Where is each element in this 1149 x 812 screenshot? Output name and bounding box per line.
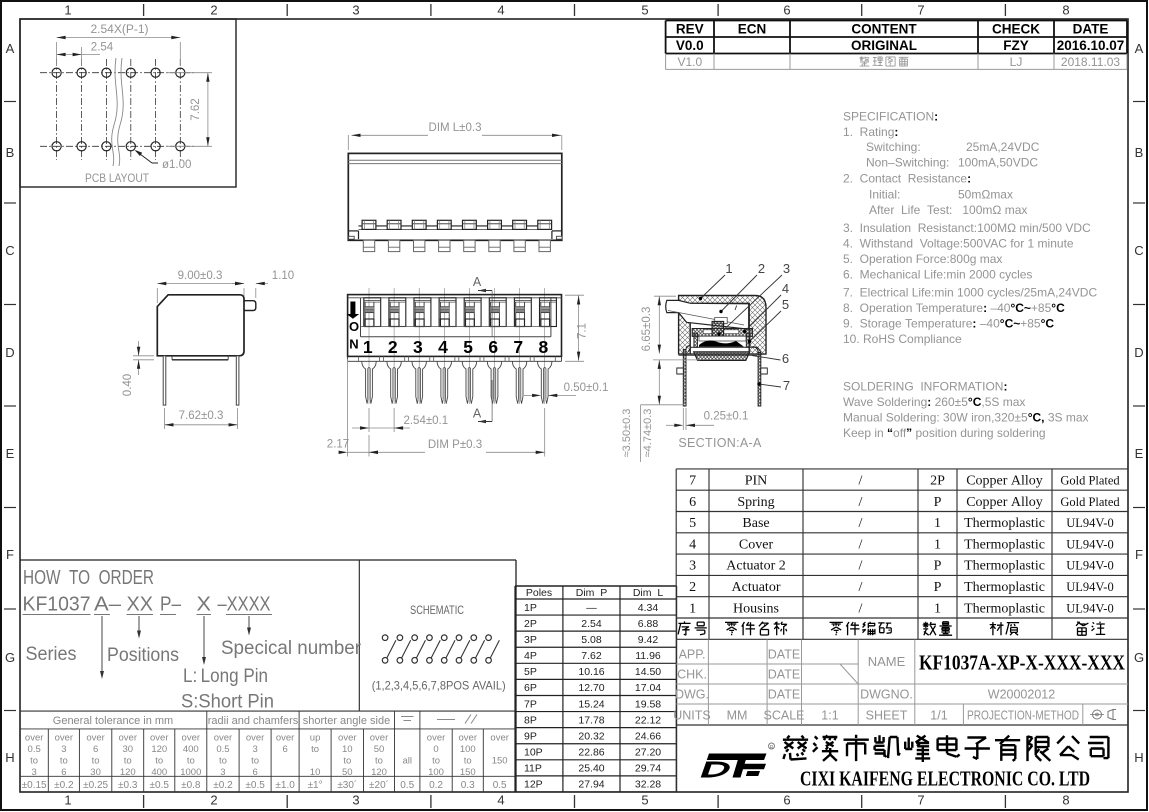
- svg-text:1: 1: [934, 601, 941, 616]
- svg-text:Actuator 2: Actuator 2: [726, 559, 785, 574]
- svg-text:DWGNO.: DWGNO.: [860, 688, 913, 702]
- svg-text:±0.8: ±0.8: [181, 780, 201, 791]
- svg-text:/: /: [859, 580, 863, 595]
- svg-text:over: over: [370, 733, 388, 744]
- svg-text:all: all: [402, 756, 412, 767]
- svg-text:0: 0: [433, 744, 438, 755]
- svg-text:/: /: [859, 601, 863, 616]
- svg-text:17.04: 17.04: [635, 682, 661, 694]
- svg-text:over: over: [276, 733, 294, 744]
- svg-text:ø1.00: ø1.00: [162, 159, 191, 171]
- svg-text:FZY: FZY: [1003, 38, 1029, 53]
- svg-text:4: 4: [497, 3, 504, 18]
- svg-text:2: 2: [689, 580, 696, 595]
- svg-text:6.65±0.3: 6.65±0.3: [641, 307, 653, 352]
- svg-text:0.5: 0.5: [28, 744, 41, 755]
- svg-text:Positions: Positions: [107, 645, 179, 666]
- svg-text:Thermoplastic: Thermoplastic: [964, 516, 1045, 531]
- svg-text:5: 5: [689, 516, 696, 531]
- svg-text:HOW TO ORDER: HOW TO ORDER: [23, 567, 154, 589]
- svg-text:3: 3: [413, 337, 423, 357]
- svg-text:1: 1: [725, 261, 732, 276]
- svg-text:30: 30: [90, 767, 101, 778]
- svg-text:/: /: [859, 474, 863, 489]
- svg-text:SCHEMATIC: SCHEMATIC: [410, 603, 464, 617]
- svg-text:6. Mechanical Life:min 2000 c: 6. Mechanical Life:min 2000 cycles: [843, 268, 1032, 282]
- svg-text:D: D: [5, 345, 14, 360]
- svg-text:up: up: [310, 733, 321, 744]
- svg-text:F: F: [6, 547, 14, 562]
- svg-text:10: 10: [310, 767, 321, 778]
- svg-text:DATE: DATE: [768, 668, 800, 682]
- svg-text:3: 3: [689, 559, 696, 574]
- svg-text:Gold Plated: Gold Plated: [1060, 495, 1120, 509]
- svg-text:1000: 1000: [180, 767, 201, 778]
- svg-text:±0.5: ±0.5: [150, 780, 170, 791]
- svg-text:5. Operation Force:800g max: 5. Operation Force:800g max: [843, 252, 1002, 266]
- svg-text:over: over: [427, 733, 445, 744]
- svg-text:A: A: [473, 275, 482, 289]
- svg-text:6.88: 6.88: [638, 618, 659, 630]
- svg-text:120: 120: [371, 767, 387, 778]
- svg-text:7: 7: [689, 474, 696, 489]
- svg-text:25mA,24VDC: 25mA,24VDC: [966, 140, 1040, 154]
- svg-text:SCALE: SCALE: [764, 709, 805, 723]
- svg-text:9P: 9P: [524, 730, 537, 742]
- svg-text:to: to: [60, 756, 68, 767]
- svg-text:0.50±0.1: 0.50±0.1: [564, 382, 609, 394]
- svg-text:P–: P–: [160, 594, 182, 616]
- svg-text:5.08: 5.08: [581, 634, 602, 646]
- svg-text:Dim L: Dim L: [633, 587, 663, 599]
- svg-text:B: B: [6, 145, 15, 160]
- svg-text:to: to: [219, 756, 227, 767]
- svg-text:7.62: 7.62: [581, 650, 602, 662]
- svg-text:B: B: [1135, 145, 1144, 160]
- svg-text:F: F: [1135, 547, 1143, 562]
- svg-text:6: 6: [93, 744, 98, 755]
- svg-text:0.2: 0.2: [429, 780, 443, 791]
- svg-text:1: 1: [934, 537, 941, 552]
- svg-text:6: 6: [689, 495, 696, 510]
- svg-text:2: 2: [388, 337, 398, 357]
- svg-text:2016.10.07: 2016.10.07: [1057, 38, 1125, 53]
- svg-text:14.50: 14.50: [635, 666, 661, 678]
- svg-text:1P: 1P: [524, 602, 537, 614]
- svg-text:to: to: [343, 756, 351, 767]
- svg-text:to: to: [187, 756, 195, 767]
- svg-text:Wave Soldering: 260±5°C,5S max: Wave Soldering: 260±5°C,5S max: [843, 395, 1025, 409]
- svg-text:5: 5: [463, 337, 473, 357]
- svg-text:3. Insulation Resistanct:100: 3. Insulation Resistanct:100MΩ min/500 V…: [843, 221, 1091, 235]
- svg-text:to: to: [375, 756, 383, 767]
- svg-text:Base: Base: [742, 516, 769, 531]
- svg-text:to: to: [251, 756, 259, 767]
- svg-text:P: P: [934, 495, 942, 510]
- svg-text:4: 4: [497, 793, 504, 808]
- svg-text:±30´: ±30´: [337, 779, 357, 791]
- svg-text:3: 3: [783, 261, 790, 276]
- svg-text:/: /: [859, 537, 863, 552]
- svg-text:Non–Switching:: Non–Switching:: [866, 156, 949, 170]
- svg-text:22.86: 22.86: [578, 747, 604, 759]
- svg-text:1. Rating:: 1. Rating:: [843, 125, 898, 139]
- svg-text:Spring: Spring: [737, 495, 774, 510]
- svg-text:3: 3: [61, 744, 66, 755]
- svg-text:3: 3: [252, 744, 257, 755]
- svg-text:1: 1: [689, 601, 696, 616]
- svg-text:over: over: [119, 733, 137, 744]
- svg-text:2018.11.03: 2018.11.03: [1061, 55, 1120, 69]
- svg-text:UL94V-0: UL94V-0: [1066, 580, 1113, 594]
- svg-text:2.54±0.1: 2.54±0.1: [403, 415, 448, 427]
- svg-text:100: 100: [428, 767, 444, 778]
- svg-text:17.78: 17.78: [578, 714, 604, 726]
- svg-text:150: 150: [460, 767, 476, 778]
- svg-text:1:1: 1:1: [821, 709, 838, 723]
- svg-text:over: over: [338, 733, 356, 744]
- svg-text:400: 400: [151, 767, 167, 778]
- svg-text:radii and chamfers: radii and chamfers: [208, 715, 299, 727]
- svg-text:400: 400: [183, 744, 199, 755]
- svg-text:±0.15: ±0.15: [22, 780, 47, 791]
- svg-text:H: H: [1134, 750, 1143, 765]
- svg-text:DWG.: DWG.: [675, 688, 709, 702]
- svg-text:7.62±0.3: 7.62±0.3: [179, 410, 224, 422]
- svg-text:9. Storage Temperature: –40°C: 9. Storage Temperature: –40°C~+85°C: [843, 317, 1054, 331]
- svg-text:6P: 6P: [524, 682, 537, 694]
- svg-text:150: 150: [492, 756, 508, 767]
- svg-text:1: 1: [363, 337, 373, 357]
- svg-text:DIM P±0.3: DIM P±0.3: [428, 439, 482, 451]
- svg-text:to: to: [92, 756, 100, 767]
- svg-text:3P: 3P: [524, 634, 537, 646]
- svg-text:A: A: [6, 41, 15, 56]
- svg-text:4: 4: [782, 281, 789, 296]
- svg-text:120: 120: [151, 744, 167, 755]
- svg-text:4P: 4P: [524, 650, 537, 662]
- svg-text:29.74: 29.74: [635, 763, 661, 775]
- svg-text:Thermoplastic: Thermoplastic: [964, 537, 1045, 552]
- svg-text:3: 3: [32, 767, 37, 778]
- svg-text:to: to: [464, 756, 472, 767]
- svg-text:10: 10: [342, 744, 353, 755]
- svg-text:7: 7: [783, 378, 790, 393]
- svg-text:8: 8: [1062, 793, 1069, 808]
- svg-text:50mΩmax: 50mΩmax: [958, 188, 1013, 202]
- svg-text:Gold Plated: Gold Plated: [1060, 474, 1120, 488]
- svg-text:50: 50: [342, 767, 353, 778]
- svg-text:11P: 11P: [524, 763, 542, 775]
- svg-text:PIN: PIN: [745, 474, 768, 489]
- svg-text:2: 2: [758, 261, 765, 276]
- svg-text:100mA,50VDC: 100mA,50VDC: [958, 156, 1038, 170]
- svg-text:27.20: 27.20: [635, 747, 661, 759]
- svg-text:8P: 8P: [524, 714, 537, 726]
- svg-text:C: C: [1134, 243, 1143, 258]
- svg-text:DATE: DATE: [768, 648, 800, 662]
- svg-text:Dim P: Dim P: [576, 587, 608, 599]
- svg-text:3: 3: [352, 793, 359, 808]
- svg-text:to: to: [432, 756, 440, 767]
- svg-text:7. Electrical Life:min 1000 c: 7. Electrical Life:min 1000 cycles/25mA,…: [843, 286, 1097, 300]
- svg-text:6: 6: [252, 767, 257, 778]
- svg-text:KF1037: KF1037: [23, 594, 91, 616]
- svg-text:7: 7: [917, 3, 924, 18]
- svg-text:SPECIFICATION:: SPECIFICATION:: [843, 110, 938, 124]
- svg-text:1: 1: [64, 793, 71, 808]
- svg-text:(1,2,3,4,5,6,7,8POS AVAIL): (1,2,3,4,5,6,7,8POS AVAIL): [372, 679, 506, 693]
- svg-text:4: 4: [689, 537, 696, 552]
- svg-text:0.25±0.1: 0.25±0.1: [704, 411, 749, 423]
- svg-text:P: P: [934, 559, 942, 574]
- svg-text:5: 5: [641, 793, 648, 808]
- svg-text:CIXI KAIFENG ELECTRONIC CO. LT: CIXI KAIFENG ELECTRONIC CO. LTD: [800, 767, 1090, 791]
- svg-text:N: N: [349, 337, 358, 352]
- svg-text:R: R: [770, 745, 774, 751]
- svg-text:L: Long Pin: L: Long Pin: [183, 666, 268, 687]
- svg-text:DATE: DATE: [1073, 22, 1109, 37]
- svg-text:DATE: DATE: [768, 688, 800, 702]
- svg-text:2P: 2P: [930, 474, 945, 489]
- svg-text:0.5: 0.5: [400, 780, 414, 791]
- svg-text:10.16: 10.16: [578, 666, 604, 678]
- svg-text:25.40: 25.40: [578, 763, 604, 775]
- svg-text:A–: A–: [94, 594, 122, 616]
- svg-text:UNITS: UNITS: [673, 709, 711, 723]
- svg-text:9.42: 9.42: [638, 634, 659, 646]
- svg-text:/: /: [859, 516, 863, 531]
- svg-text:over: over: [459, 733, 477, 744]
- svg-text:7.62: 7.62: [190, 98, 202, 120]
- svg-text:1: 1: [934, 516, 941, 531]
- svg-text:12.70: 12.70: [578, 682, 604, 694]
- svg-text:7: 7: [917, 793, 924, 808]
- svg-text:over: over: [55, 733, 73, 744]
- svg-text:Poles: Poles: [526, 587, 552, 599]
- svg-text:2.17: 2.17: [327, 439, 349, 451]
- svg-text:2: 2: [210, 3, 217, 18]
- svg-text:5: 5: [641, 3, 648, 18]
- svg-text:50: 50: [374, 744, 385, 755]
- svg-text:over: over: [150, 733, 168, 744]
- svg-text:A: A: [473, 407, 482, 421]
- svg-text:6: 6: [782, 351, 789, 366]
- svg-text:3: 3: [352, 3, 359, 18]
- svg-text:7: 7: [513, 337, 523, 357]
- svg-text:2: 2: [210, 793, 217, 808]
- svg-text:2.54: 2.54: [581, 618, 602, 630]
- svg-text:SECTION:A-A: SECTION:A-A: [678, 436, 762, 450]
- svg-text:±1.0: ±1.0: [275, 780, 295, 791]
- svg-text:H: H: [5, 750, 14, 765]
- svg-text:General tolerance in mm: General tolerance in mm: [53, 715, 173, 727]
- svg-text:±0.5: ±0.5: [245, 780, 265, 791]
- svg-text:22.12: 22.12: [635, 714, 661, 726]
- svg-text:10. RoHS Compliance: 10. RoHS Compliance: [843, 332, 962, 346]
- svg-text:0.40: 0.40: [122, 374, 134, 396]
- svg-text:11.96: 11.96: [635, 650, 661, 662]
- svg-text:XX: XX: [127, 594, 154, 616]
- svg-text:LJ: LJ: [1010, 55, 1023, 69]
- svg-text:CHECK: CHECK: [992, 22, 1040, 37]
- svg-text:G: G: [1134, 650, 1144, 665]
- svg-text:2.54: 2.54: [91, 42, 114, 54]
- svg-text:over: over: [246, 733, 264, 744]
- svg-text:Thermoplastic: Thermoplastic: [964, 601, 1045, 616]
- svg-text:Manual Soldering: 30W iron,320: Manual Soldering: 30W iron,320±5°C, 3S m…: [843, 411, 1089, 425]
- svg-text:6: 6: [488, 337, 498, 357]
- svg-text:1: 1: [64, 3, 71, 18]
- svg-text:over: over: [182, 733, 200, 744]
- svg-text:±0.2: ±0.2: [54, 780, 74, 791]
- svg-text:19.58: 19.58: [635, 698, 661, 710]
- svg-text:6: 6: [783, 793, 790, 808]
- svg-text:8. Operation Temperature: –40: 8. Operation Temperature: –40°C~+85°C: [843, 301, 1065, 315]
- svg-text:to: to: [124, 756, 132, 767]
- svg-text:0.5: 0.5: [216, 744, 229, 755]
- svg-text:6: 6: [282, 744, 287, 755]
- svg-text:32.28: 32.28: [635, 779, 661, 791]
- svg-text:UL94V-0: UL94V-0: [1066, 601, 1113, 615]
- svg-text:5P: 5P: [524, 666, 537, 678]
- svg-text:10P: 10P: [524, 747, 543, 759]
- svg-text:Series: Series: [26, 644, 77, 665]
- svg-text:ECN: ECN: [738, 22, 767, 37]
- svg-text:24.66: 24.66: [635, 730, 661, 742]
- svg-text:7P: 7P: [524, 698, 537, 710]
- svg-text:12P: 12P: [524, 779, 543, 791]
- svg-text:/: /: [859, 559, 863, 574]
- svg-text:Copper Alloy: Copper Alloy: [966, 474, 1043, 489]
- svg-text:1/1: 1/1: [930, 709, 947, 723]
- svg-text:ORIGINAL: ORIGINAL: [851, 38, 917, 53]
- svg-text:2P: 2P: [524, 618, 537, 630]
- svg-text:KF1037A-XP-X-XXX-XXX: KF1037A-XP-X-XXX-XXX: [919, 651, 1125, 675]
- svg-text:UL94V-0: UL94V-0: [1066, 537, 1113, 551]
- svg-text:NAME: NAME: [868, 654, 906, 669]
- svg-text:–XXXX: –XXXX: [218, 594, 271, 616]
- svg-text:±20´: ±20´: [369, 779, 389, 791]
- svg-text:±0.3: ±0.3: [118, 780, 138, 791]
- svg-text:CONTENT: CONTENT: [851, 22, 917, 37]
- svg-text:MM: MM: [727, 709, 748, 723]
- svg-text:G: G: [5, 650, 15, 665]
- svg-text:REV: REV: [676, 22, 704, 37]
- svg-text:Switching:: Switching:: [866, 140, 921, 154]
- svg-text:±0.25: ±0.25: [83, 780, 108, 791]
- svg-text:Thermoplastic: Thermoplastic: [964, 580, 1045, 595]
- svg-text:UL94V-0: UL94V-0: [1066, 516, 1113, 530]
- svg-text:over: over: [490, 733, 508, 744]
- svg-text:120: 120: [120, 767, 136, 778]
- svg-text:0.5: 0.5: [493, 780, 507, 791]
- svg-text:27.94: 27.94: [578, 779, 604, 791]
- svg-text:Housins: Housins: [733, 601, 779, 616]
- svg-text:over: over: [25, 733, 43, 744]
- svg-text:E: E: [1135, 446, 1144, 461]
- svg-text:≈3.50±0.3: ≈3.50±0.3: [621, 409, 633, 458]
- svg-text:to: to: [155, 756, 163, 767]
- svg-text:4: 4: [438, 337, 448, 357]
- svg-text:to: to: [30, 756, 38, 767]
- svg-text:W20002012: W20002012: [988, 688, 1055, 702]
- svg-text:3: 3: [220, 767, 225, 778]
- svg-text:SHEET: SHEET: [866, 709, 908, 723]
- svg-text:5: 5: [782, 297, 789, 312]
- svg-text:over: over: [86, 733, 104, 744]
- svg-text:4.34: 4.34: [638, 602, 659, 614]
- svg-text:E: E: [6, 446, 15, 461]
- svg-text:UL94V-0: UL94V-0: [1066, 559, 1113, 573]
- svg-text:X: X: [197, 594, 212, 616]
- svg-text:CHK.: CHK.: [677, 668, 707, 682]
- svg-text:8: 8: [1062, 3, 1069, 18]
- svg-text:Copper Alloy: Copper Alloy: [966, 495, 1043, 510]
- svg-text:PCB LAYOUT: PCB LAYOUT: [85, 171, 150, 185]
- svg-text:±0.2: ±0.2: [213, 780, 233, 791]
- svg-text:20.32: 20.32: [578, 730, 604, 742]
- svg-text:over: over: [214, 733, 232, 744]
- svg-text:Actuator: Actuator: [732, 580, 781, 595]
- svg-text:±1°: ±1°: [308, 780, 323, 791]
- svg-text:/: /: [859, 495, 863, 510]
- svg-text:A: A: [1135, 41, 1144, 56]
- svg-text:P: P: [934, 580, 942, 595]
- svg-text:Initial:: Initial:: [869, 188, 900, 202]
- svg-text:1.10: 1.10: [272, 270, 294, 282]
- svg-text:to: to: [311, 744, 319, 755]
- svg-text:S:Short Pin: S:Short Pin: [181, 692, 274, 713]
- svg-text:6: 6: [783, 3, 790, 18]
- svg-text:APP.: APP.: [679, 648, 706, 662]
- svg-text:SOLDERING INFORMATION:: SOLDERING INFORMATION:: [843, 380, 1007, 394]
- svg-text:DIM L±0.3: DIM L±0.3: [429, 122, 482, 134]
- svg-text:—: —: [586, 602, 597, 614]
- svg-text:Specical number: Specical number: [221, 638, 362, 659]
- svg-text:30: 30: [122, 744, 133, 755]
- svg-text:100: 100: [460, 744, 476, 755]
- svg-text:6: 6: [61, 767, 66, 778]
- svg-text:Keep in “off” position during: Keep in “off” position during soldering: [843, 426, 1046, 440]
- svg-text:≈4.74±0.3: ≈4.74±0.3: [642, 409, 654, 458]
- svg-text:Cover: Cover: [739, 537, 774, 552]
- svg-text:9.00±0.3: 9.00±0.3: [178, 270, 223, 282]
- svg-text:PROJECTION-METHOD: PROJECTION-METHOD: [967, 709, 1079, 723]
- svg-text:C: C: [5, 243, 14, 258]
- svg-text:O: O: [349, 319, 359, 334]
- svg-text:15.24: 15.24: [578, 698, 604, 710]
- svg-text:8: 8: [539, 337, 549, 357]
- svg-text:V1.0: V1.0: [677, 55, 702, 69]
- svg-text:2. Contact Resistance:: 2. Contact Resistance:: [843, 172, 971, 186]
- svg-text:D: D: [1134, 345, 1143, 360]
- svg-text:2.54X(P-1): 2.54X(P-1): [91, 24, 149, 36]
- svg-text:0.3: 0.3: [461, 780, 475, 791]
- svg-text:V0.0: V0.0: [676, 38, 704, 53]
- svg-text:After Life Test: 100mΩ max: After Life Test: 100mΩ max: [869, 203, 1027, 217]
- svg-text:Thermoplastic: Thermoplastic: [964, 559, 1045, 574]
- svg-text:shorter angle side: shorter angle side: [303, 715, 390, 727]
- svg-text:4. Withstand Voltage:500VAC: 4. Withstand Voltage:500VAC for 1 minute: [843, 237, 1074, 251]
